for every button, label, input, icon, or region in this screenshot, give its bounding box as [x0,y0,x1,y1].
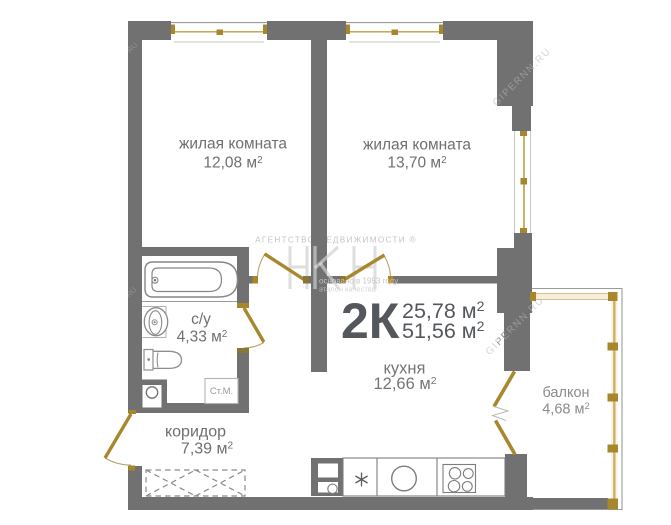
svg-text:12,08 м2: 12,08 м2 [203,155,263,172]
svg-text:АГЕНТСТВО НЕДВИЖИМОСТИ ®: АГЕНТСТВО НЕДВИЖИМОСТИ ® [255,236,417,245]
svg-text:13,70 м2: 13,70 м2 [387,155,447,172]
svg-text:коридор: коридор [165,424,226,441]
svg-text:7,39 м2: 7,39 м2 [181,440,234,457]
svg-text:12,66 м2: 12,66 м2 [373,375,436,393]
svg-text:51,56 м2: 51,56 м2 [402,318,485,343]
svg-text:Ст.М.: Ст.М. [210,386,233,397]
svg-text:4,68 м2: 4,68 м2 [542,401,590,418]
svg-text:с/у: с/у [191,311,211,328]
svg-text:балкон: балкон [542,385,589,401]
svg-text:2К: 2К [341,293,400,349]
svg-text:4,33 м2: 4,33 м2 [177,329,228,346]
svg-text:жилая комната: жилая комната [363,137,471,154]
svg-text:жилая комната: жилая комната [179,135,287,152]
